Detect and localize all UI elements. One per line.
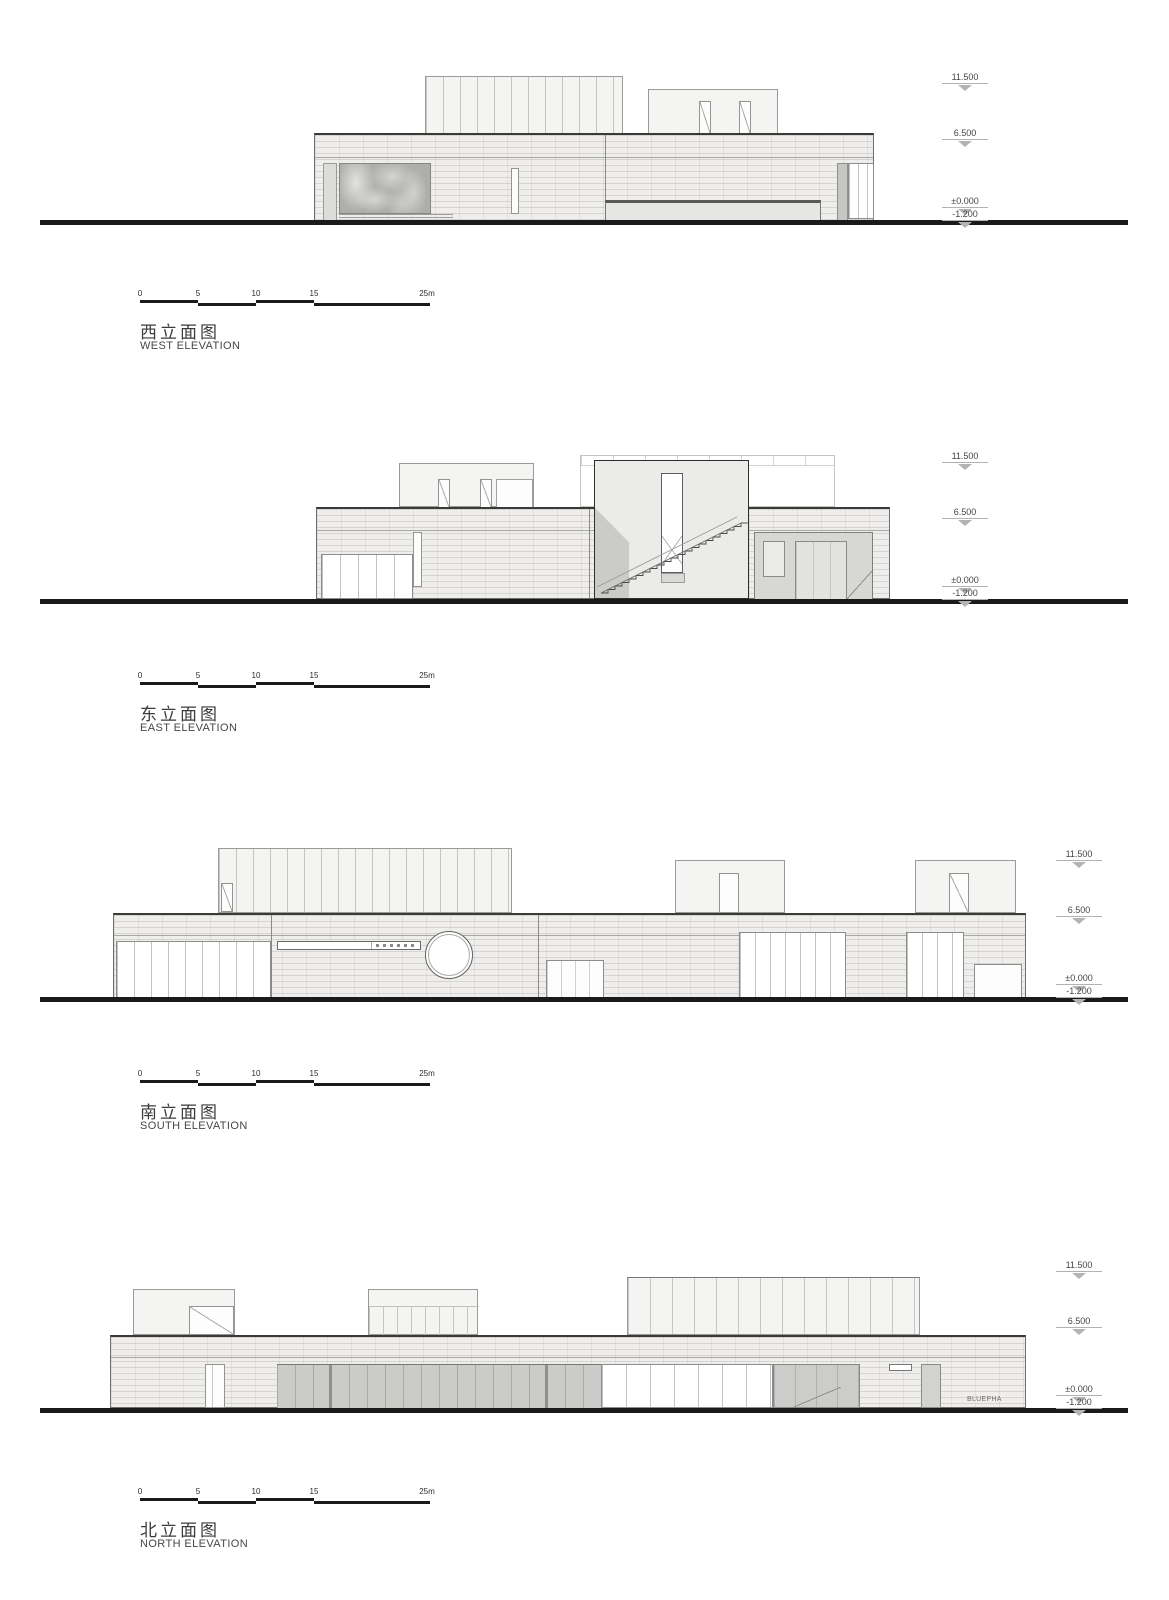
south-low-opening (546, 960, 604, 998)
scale-label: 15 (310, 671, 319, 680)
door-leaf-diagonal (740, 102, 750, 133)
stair-rail-diagonal (794, 1387, 841, 1407)
section-title-en: NORTH ELEVATION (140, 1538, 248, 1550)
south-roof-volume-right (915, 860, 1016, 913)
scale-segment (314, 685, 430, 688)
level-value: ±0.000 (942, 575, 988, 587)
west-right-window (848, 163, 874, 219)
south-glazed-opening (739, 932, 846, 998)
west-reflective-window (339, 163, 431, 214)
door-leaf-diagonal (190, 1307, 233, 1334)
level-marker-6500: 6.500 (942, 507, 988, 526)
scale-label: 25m (419, 671, 435, 680)
door-leaf-diagonal (222, 884, 232, 911)
door-frame-line (212, 1365, 213, 1407)
scale-label: 25m (419, 289, 435, 298)
west-roof-slatted-volume (425, 76, 623, 134)
north-roof-volume-left (133, 1289, 235, 1335)
scale-bar: 0 5 10 15 25m (140, 1498, 432, 1506)
north-roof-door (189, 1306, 234, 1335)
glazing-column (545, 1365, 548, 1408)
west-right-pilaster (837, 163, 848, 223)
scale-segment (256, 682, 314, 685)
level-triangle-icon (1072, 1329, 1086, 1335)
south-glazed-opening (906, 932, 964, 998)
level-value: 11.500 (942, 72, 988, 84)
scale-label: 0 (138, 1487, 142, 1496)
scale-segment (198, 1083, 256, 1086)
ground-line (40, 997, 1128, 1002)
west-roof-door-slot (699, 101, 711, 134)
level-marker-minus1200: -1.200 (942, 209, 988, 228)
south-roof-slatted-volume (218, 848, 512, 913)
level-marker-6500: 6.500 (1056, 1316, 1102, 1335)
level-value: 6.500 (942, 128, 988, 140)
level-triangle-icon (958, 464, 972, 470)
scale-segment (314, 1501, 430, 1504)
east-roof-door-slot (438, 479, 450, 508)
scale-segment (198, 685, 256, 688)
north-main-block: BLUEPHA (110, 1335, 1026, 1408)
scale-label: 15 (310, 1487, 319, 1496)
scale-label: 10 (252, 289, 261, 298)
scale-segment (140, 1498, 198, 1501)
east-roof-window (496, 479, 533, 508)
south-roof-door-slot (949, 873, 969, 913)
scale-label: 10 (252, 1069, 261, 1078)
west-narrow-slot (511, 168, 519, 214)
level-triangle-icon (958, 601, 972, 607)
west-main-block (314, 133, 874, 221)
scale-label: 5 (196, 1487, 200, 1496)
scale-segment (256, 1498, 314, 1501)
level-triangle-icon (1072, 918, 1086, 924)
level-triangle-icon (1072, 999, 1086, 1005)
east-roof-door-slot (480, 479, 492, 508)
scale-segment (314, 303, 430, 306)
section-title-en: EAST ELEVATION (140, 722, 237, 734)
level-value: ±0.000 (942, 196, 988, 208)
parapet-line (315, 157, 873, 158)
door-leaf-diagonal (439, 480, 449, 507)
west-roof-plain-volume (648, 89, 778, 134)
south-low-opening (974, 964, 1022, 998)
east-recessed-porch (754, 532, 873, 600)
scale-label: 0 (138, 1069, 142, 1078)
scale-segment (198, 1501, 256, 1504)
scale-segment (140, 300, 198, 303)
scale-segment (198, 303, 256, 306)
level-value: -1.200 (1056, 1397, 1102, 1409)
level-value: ±0.000 (1056, 973, 1102, 985)
level-marker-minus1200: -1.200 (942, 588, 988, 607)
section-joint-line (589, 509, 590, 598)
rail-diagonal (847, 571, 872, 599)
porch-stair-rail (847, 571, 872, 599)
scale-bar: 0 5 10 15 25m (140, 682, 432, 690)
north-roof-volume-mid (368, 1289, 478, 1335)
level-value: ±0.000 (1056, 1384, 1102, 1396)
door-leaf-diagonal (481, 480, 491, 507)
level-value: -1.200 (942, 209, 988, 221)
south-roof-door-slot (719, 873, 739, 913)
level-triangle-icon (958, 520, 972, 526)
scale-segment (256, 1080, 314, 1083)
north-roof-volume-large (627, 1277, 920, 1335)
section-title-en: WEST ELEVATION (140, 340, 240, 352)
level-value: 6.500 (1056, 1316, 1102, 1328)
level-value: -1.200 (1056, 986, 1102, 998)
south-main-block (113, 913, 1026, 998)
ground-line (40, 1408, 1128, 1413)
scale-segment (314, 1083, 430, 1086)
level-value: -1.200 (942, 588, 988, 600)
south-strip-window (277, 941, 421, 950)
north-glazing-dark (277, 1364, 601, 1408)
parapet-line (114, 935, 1025, 936)
level-marker-11500: 11.500 (942, 451, 988, 470)
level-value: 6.500 (1056, 905, 1102, 917)
north-vent-opening (889, 1364, 912, 1371)
scale-label: 15 (310, 289, 319, 298)
door-leaf-diagonal (950, 874, 968, 912)
south-left-glazing (116, 941, 271, 998)
strip-window-dots (376, 944, 416, 947)
level-marker-6500: 6.500 (1056, 905, 1102, 924)
porch-window (763, 541, 785, 577)
level-marker-6500: 6.500 (942, 128, 988, 147)
scale-label: 5 (196, 289, 200, 298)
roof-volume-slats (369, 1306, 479, 1336)
level-marker-11500: 11.500 (942, 72, 988, 91)
parapet-line (111, 1357, 1025, 1358)
north-door-slot (205, 1364, 225, 1408)
level-marker-minus1200: -1.200 (1056, 1397, 1102, 1416)
elevation-sheet: 11.500 6.500 ±0.000 -1.200 0 5 10 15 25m… (0, 0, 1169, 1600)
level-value: 11.500 (1056, 849, 1102, 861)
level-marker-minus1200: -1.200 (1056, 986, 1102, 1005)
west-left-pilaster (323, 163, 337, 221)
level-triangle-icon (958, 85, 972, 91)
level-triangle-icon (958, 222, 972, 228)
south-roof-slot (221, 883, 233, 912)
glazing-column (329, 1365, 332, 1408)
east-left-window (321, 554, 413, 599)
strip-window-divider (371, 942, 372, 949)
scale-label: 15 (310, 1069, 319, 1078)
north-glazing-light (601, 1364, 773, 1408)
west-roof-door-slot (739, 101, 751, 134)
level-value: 11.500 (942, 451, 988, 463)
level-triangle-icon (958, 141, 972, 147)
scale-segment (140, 1080, 198, 1083)
door-leaf-diagonal (700, 102, 710, 133)
scale-segment (256, 300, 314, 303)
east-stair-tower (594, 460, 749, 599)
level-value: 11.500 (1056, 1260, 1102, 1272)
scale-label: 0 (138, 289, 142, 298)
scale-label: 25m (419, 1487, 435, 1496)
scale-bar: 0 5 10 15 25m (140, 300, 432, 308)
north-recessed-box (773, 1364, 860, 1408)
exterior-stair (595, 461, 750, 600)
scale-segment (140, 682, 198, 685)
porthole-inner-ring (428, 934, 470, 976)
east-roof-volume (399, 463, 534, 507)
north-service-door (921, 1364, 941, 1408)
scale-label: 5 (196, 1069, 200, 1078)
scale-label: 25m (419, 1069, 435, 1078)
scale-label: 10 (252, 671, 261, 680)
level-triangle-icon (1072, 862, 1086, 868)
scale-label: 5 (196, 671, 200, 680)
scale-label: 10 (252, 1487, 261, 1496)
level-triangle-icon (1072, 1410, 1086, 1416)
section-joint-line (271, 915, 272, 997)
scale-bar: 0 5 10 15 25m (140, 1080, 432, 1088)
west-long-opening (605, 200, 821, 221)
section-title-en: SOUTH ELEVATION (140, 1120, 248, 1132)
level-triangle-icon (1072, 1273, 1086, 1279)
level-marker-11500: 11.500 (1056, 1260, 1102, 1279)
porch-door (795, 541, 847, 600)
level-marker-11500: 11.500 (1056, 849, 1102, 868)
section-joint-line (538, 915, 539, 997)
bluepha-watermark: BLUEPHA (967, 1396, 1002, 1403)
level-value: 6.500 (942, 507, 988, 519)
south-porthole-window (425, 931, 473, 979)
scale-label: 0 (138, 671, 142, 680)
east-narrow-slot (413, 532, 422, 587)
south-roof-volume-mid (675, 860, 785, 913)
